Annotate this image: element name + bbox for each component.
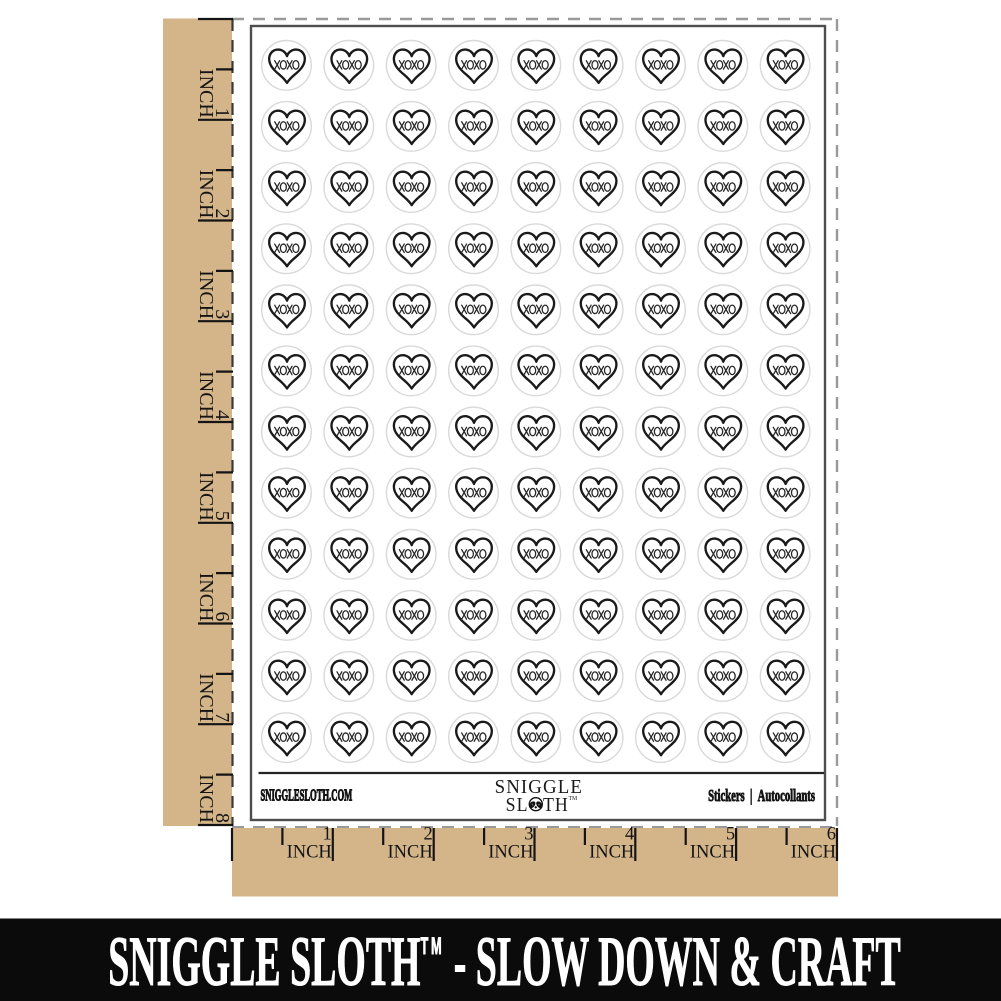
svg-text:4: 4 [625, 825, 634, 845]
svg-text:INCH: INCH [195, 673, 217, 722]
svg-text:6: 6 [827, 825, 836, 845]
svg-text:INCH: INCH [195, 69, 217, 118]
svg-text:SNIGGLE SLOTHTM - SLOW DOWN &: SNIGGLE SLOTHTM - SLOW DOWN & CRAFT [108, 923, 901, 1001]
svg-text:INCH: INCH [195, 472, 217, 521]
svg-text:TM: TM [569, 796, 578, 802]
svg-text:INCH: INCH [488, 843, 533, 863]
svg-text:Stickers | Autocollants: Stickers | Autocollants [708, 788, 815, 806]
svg-text:INCH: INCH [195, 573, 217, 622]
svg-text:INCH: INCH [690, 843, 735, 863]
svg-text:INCH: INCH [195, 270, 217, 319]
svg-text:2: 2 [423, 825, 432, 845]
svg-text:SL: SL [506, 794, 529, 816]
svg-text:SNIGGLESLOTH.COM: SNIGGLESLOTH.COM [261, 785, 353, 804]
svg-text:5: 5 [726, 825, 735, 845]
svg-text:1: 1 [323, 825, 332, 845]
svg-text:INCH: INCH [287, 843, 332, 863]
svg-text:INCH: INCH [195, 371, 217, 420]
svg-text:INCH: INCH [589, 843, 634, 863]
svg-text:INCH: INCH [387, 843, 432, 863]
svg-text:INCH: INCH [195, 170, 217, 219]
svg-text:3: 3 [524, 825, 533, 845]
svg-text:INCH: INCH [195, 774, 217, 823]
svg-text:INCH: INCH [791, 843, 836, 863]
svg-text:TH: TH [543, 794, 569, 816]
